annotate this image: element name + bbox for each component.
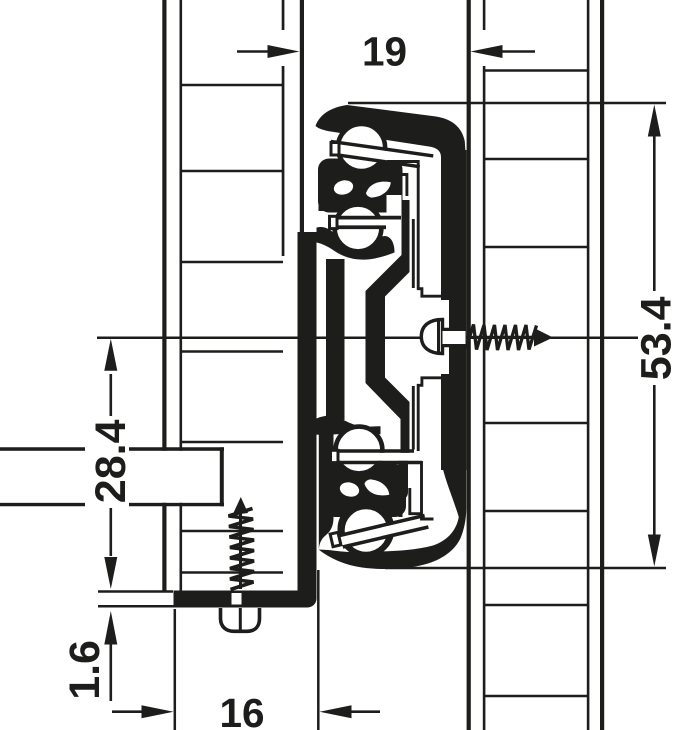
svg-text:1.6: 1.6	[61, 640, 109, 700]
svg-text:53.4: 53.4	[633, 296, 674, 380]
svg-text:19: 19	[362, 28, 407, 74]
svg-text:28.4: 28.4	[87, 419, 135, 503]
svg-text:16: 16	[220, 690, 265, 730]
